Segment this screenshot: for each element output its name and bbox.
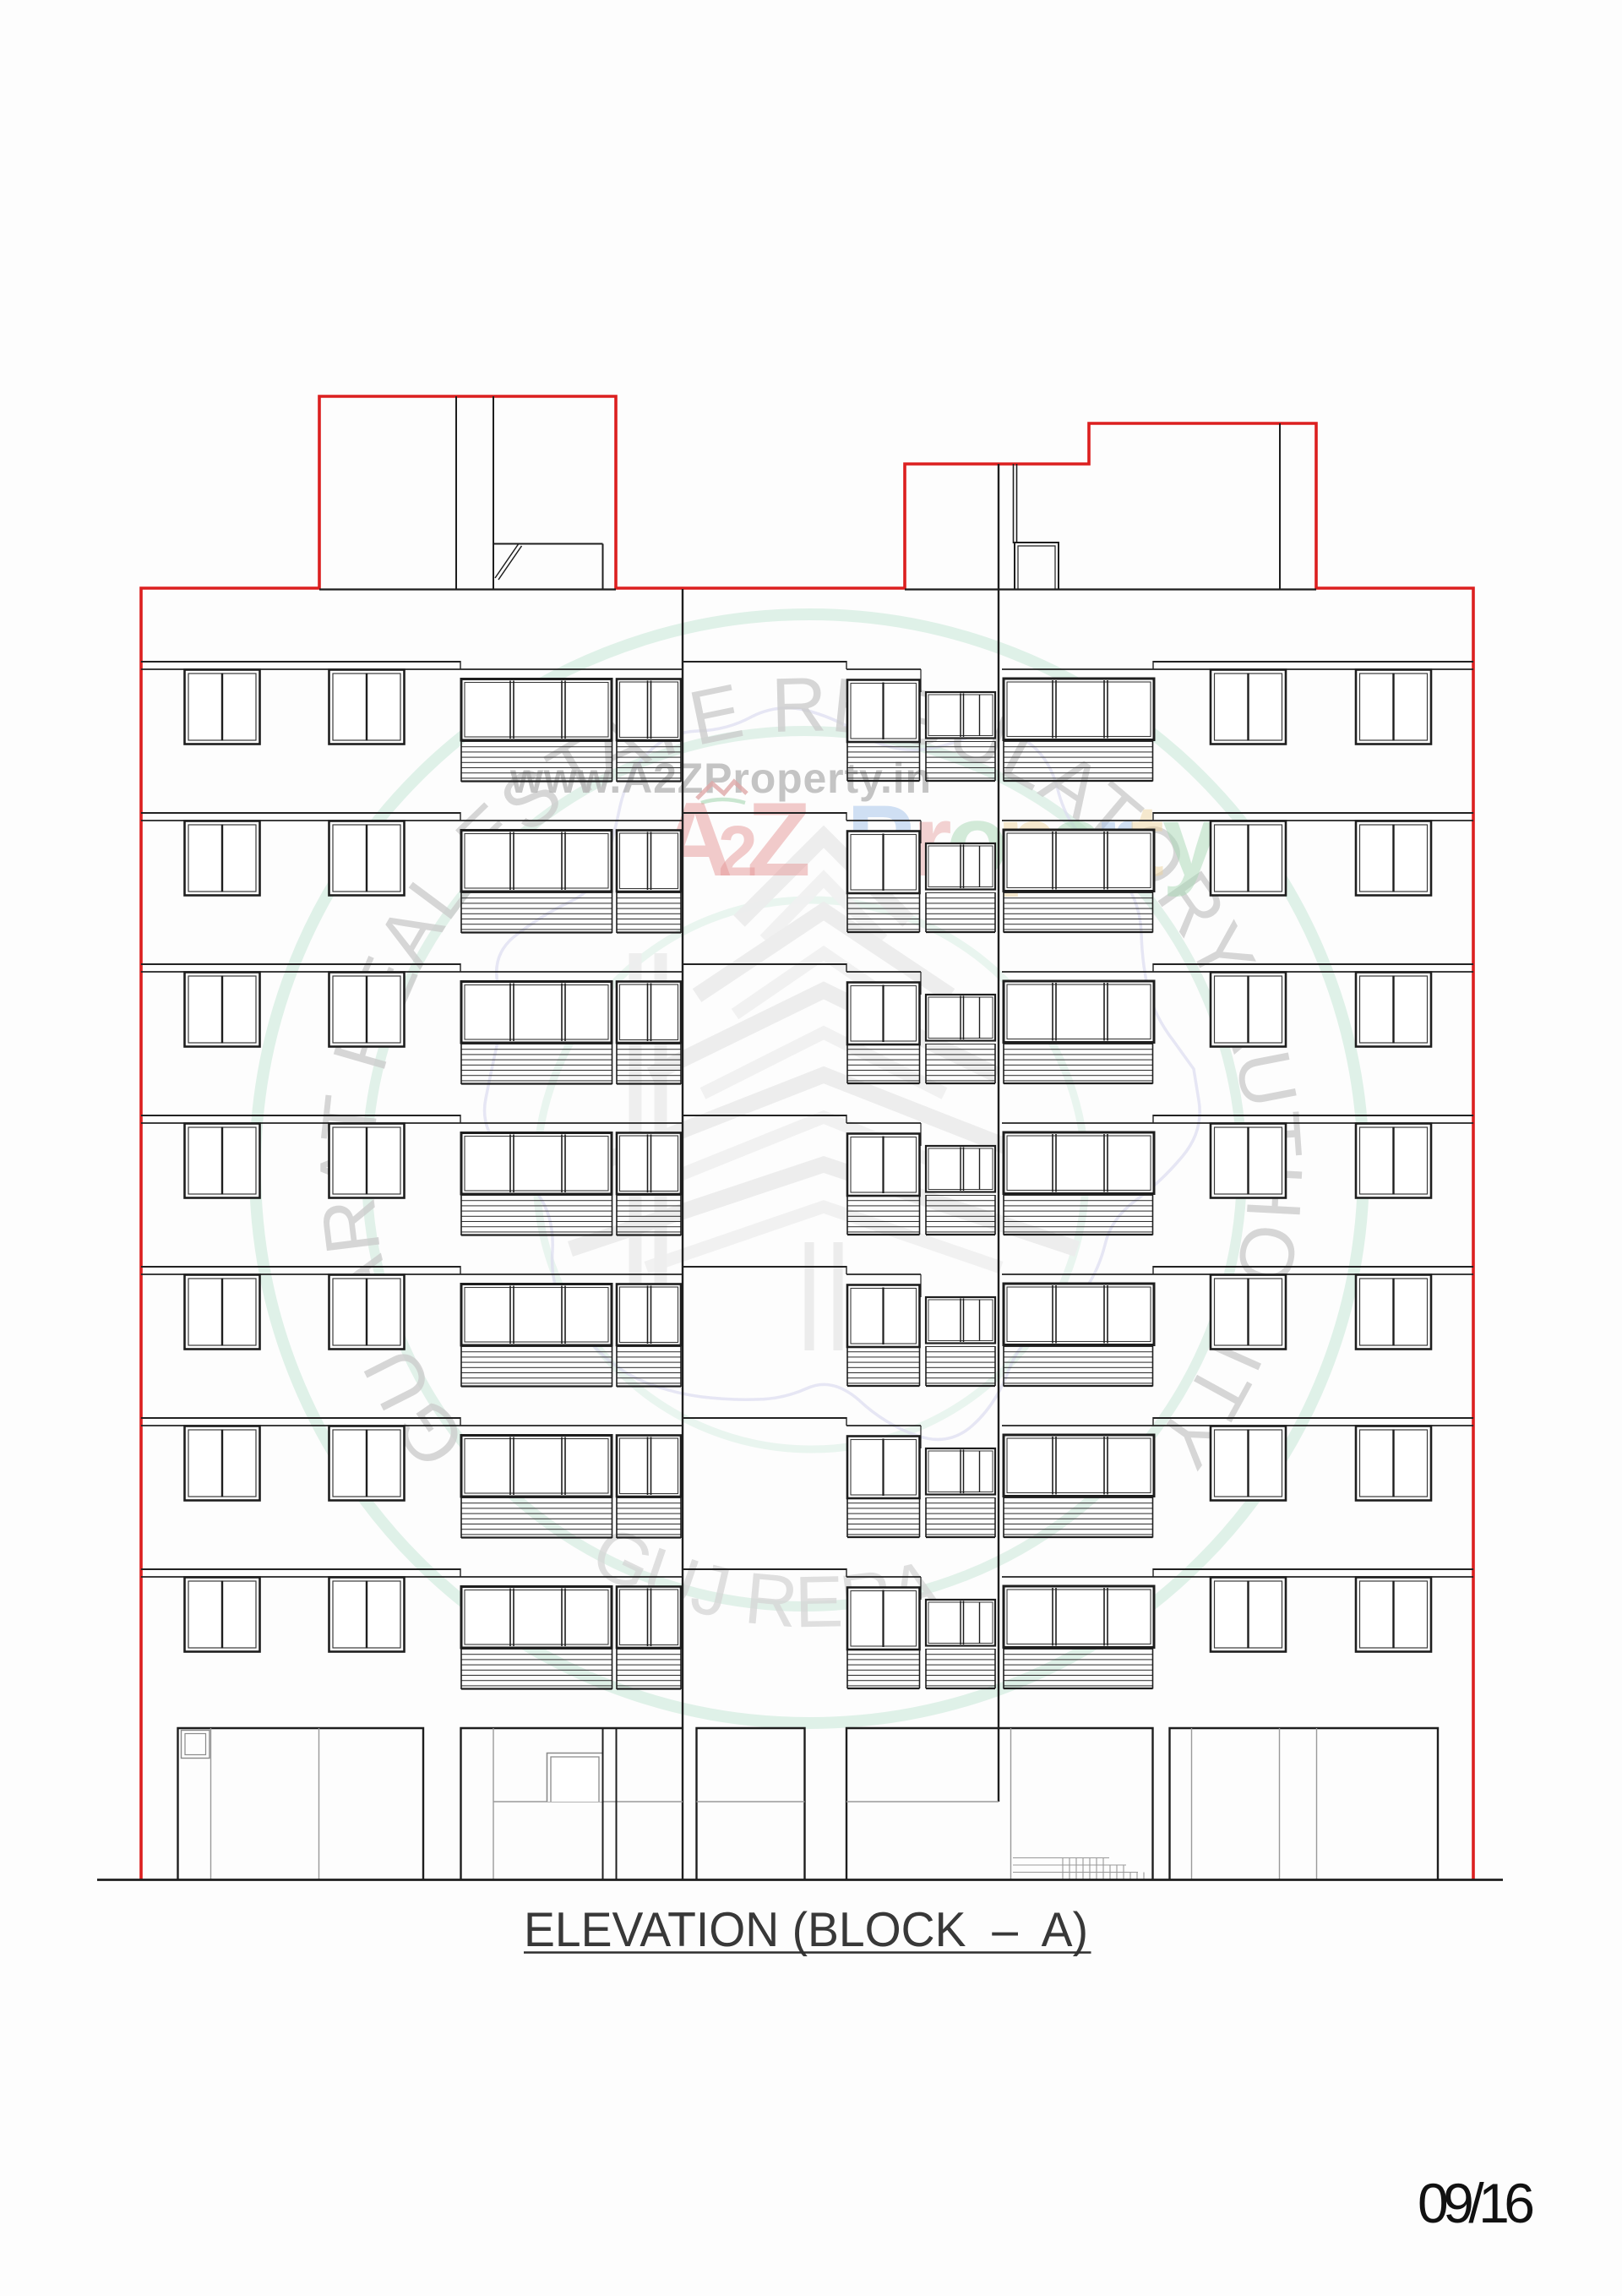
svg-text:09/16: 09/16 [1418,2172,1535,2234]
svg-text:Z: Z [747,782,811,898]
svg-text:ELEVATION (BLOCK – A): ELEVATION (BLOCK – A) [524,1903,1088,1957]
